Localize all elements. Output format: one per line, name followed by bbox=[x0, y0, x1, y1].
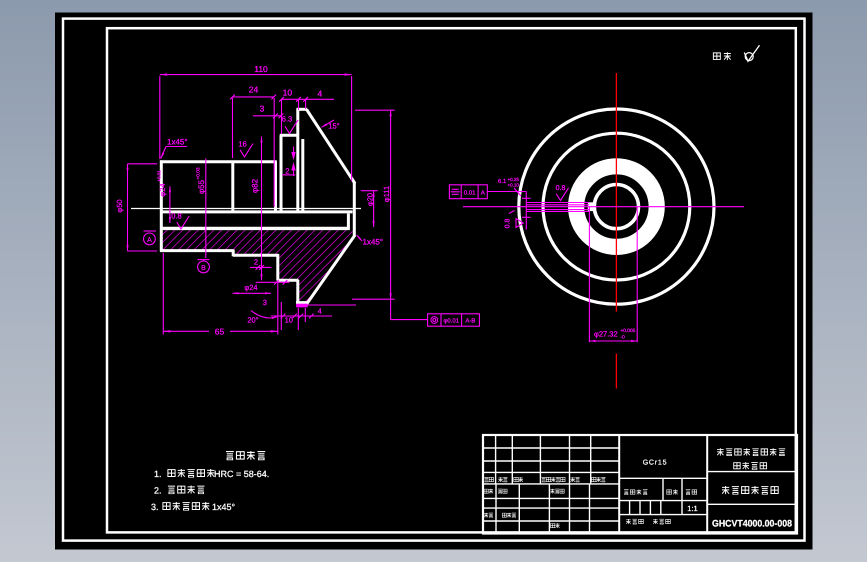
svg-text:φ24: φ24 bbox=[158, 183, 167, 196]
svg-text:-0: -0 bbox=[621, 334, 626, 340]
svg-text:GCr15: GCr15 bbox=[643, 459, 668, 466]
svg-text:+0.005: +0.005 bbox=[621, 328, 636, 334]
svg-text:+0.01: +0.01 bbox=[157, 170, 162, 182]
svg-text:GHCVT4000.00-008: GHCVT4000.00-008 bbox=[712, 519, 792, 530]
svg-text:3: 3 bbox=[263, 298, 267, 307]
svg-text:24: 24 bbox=[249, 85, 259, 95]
svg-text:A: A bbox=[147, 237, 152, 244]
svg-text:+0.25: +0.25 bbox=[508, 177, 520, 182]
svg-text:6.3: 6.3 bbox=[282, 115, 292, 124]
svg-text:1.: 1. bbox=[154, 469, 162, 479]
svg-text:φ82: φ82 bbox=[251, 178, 260, 193]
svg-text:3: 3 bbox=[260, 104, 265, 114]
svg-text:φ0.01: φ0.01 bbox=[444, 318, 460, 325]
svg-text:4: 4 bbox=[318, 89, 323, 99]
svg-text:20°: 20° bbox=[247, 316, 258, 325]
svg-text:0.8: 0.8 bbox=[171, 212, 181, 221]
svg-text:10: 10 bbox=[285, 316, 293, 325]
svg-text:2: 2 bbox=[254, 258, 258, 267]
svg-text:16: 16 bbox=[238, 140, 246, 149]
svg-text:HRC = 58-64.: HRC = 58-64. bbox=[214, 469, 269, 479]
svg-text:φ20: φ20 bbox=[366, 193, 375, 206]
svg-text:A: A bbox=[481, 189, 485, 196]
svg-text:B: B bbox=[201, 265, 206, 272]
svg-text:φ111: φ111 bbox=[382, 186, 391, 202]
svg-text:10: 10 bbox=[283, 88, 293, 98]
svg-text:15°: 15° bbox=[328, 122, 339, 131]
svg-text:φ24: φ24 bbox=[244, 283, 257, 292]
svg-text:+0.03: +0.03 bbox=[196, 167, 202, 179]
svg-text:φ27.32: φ27.32 bbox=[594, 330, 618, 339]
svg-text:2: 2 bbox=[285, 166, 289, 175]
svg-text:4: 4 bbox=[318, 307, 322, 316]
svg-text:φ55: φ55 bbox=[197, 179, 206, 194]
svg-text:65: 65 bbox=[215, 326, 225, 336]
svg-text:110: 110 bbox=[254, 64, 268, 74]
svg-text:2.: 2. bbox=[154, 486, 162, 496]
svg-text:0.8: 0.8 bbox=[556, 185, 566, 192]
svg-text:1x45°: 1x45° bbox=[167, 138, 188, 147]
svg-text:1x45°: 1x45° bbox=[363, 238, 384, 247]
svg-text:φ50: φ50 bbox=[115, 199, 124, 212]
svg-text:+0.10: +0.10 bbox=[508, 183, 520, 188]
svg-text:3.: 3. bbox=[151, 502, 159, 512]
svg-text:0.8: 0.8 bbox=[505, 219, 512, 229]
svg-text:A-B: A-B bbox=[465, 318, 475, 325]
svg-text:1x45°: 1x45° bbox=[212, 502, 236, 512]
svg-text:6.1: 6.1 bbox=[498, 178, 507, 185]
svg-text:1:1: 1:1 bbox=[687, 504, 697, 513]
svg-text:0.01: 0.01 bbox=[464, 189, 476, 196]
